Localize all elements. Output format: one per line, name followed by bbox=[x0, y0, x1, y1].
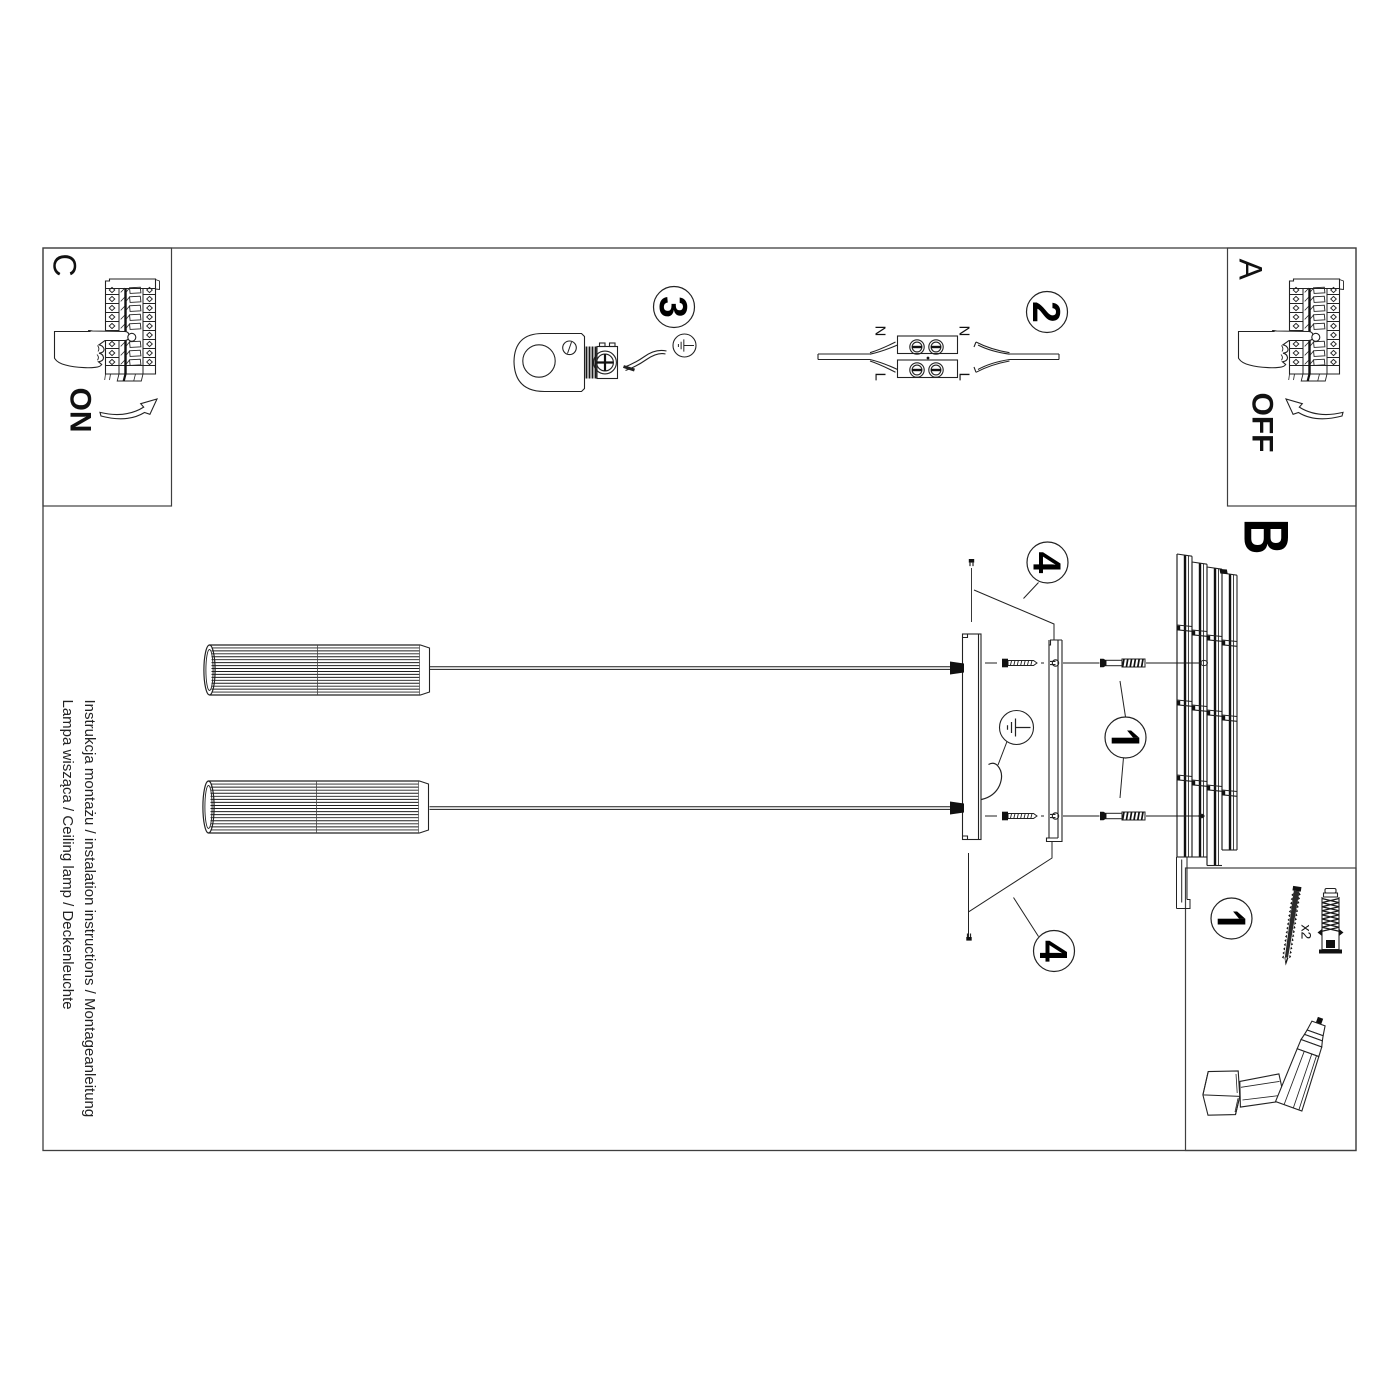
svg-text:Instrukcja montażu / instalati: Instrukcja montażu / instalation instruc… bbox=[81, 700, 98, 1118]
svg-text:N: N bbox=[872, 326, 889, 337]
svg-text:L: L bbox=[872, 373, 889, 381]
svg-text:C: C bbox=[47, 254, 83, 277]
svg-text:OFF: OFF bbox=[1246, 393, 1279, 453]
svg-text:2: 2 bbox=[1024, 301, 1067, 323]
svg-text:A: A bbox=[1233, 259, 1269, 281]
svg-text:x2: x2 bbox=[1299, 925, 1315, 940]
svg-text:N: N bbox=[956, 326, 973, 337]
svg-text:Lampa wisząca / Ceiling lamp /: Lampa wisząca / Ceiling lamp / Deckenleu… bbox=[59, 700, 76, 1010]
svg-text:ON: ON bbox=[64, 388, 97, 433]
svg-text:4: 4 bbox=[1031, 940, 1074, 962]
svg-text:3: 3 bbox=[651, 296, 694, 318]
svg-text:L: L bbox=[956, 373, 973, 381]
svg-text:4: 4 bbox=[1025, 552, 1068, 574]
svg-text:B: B bbox=[1231, 519, 1301, 555]
